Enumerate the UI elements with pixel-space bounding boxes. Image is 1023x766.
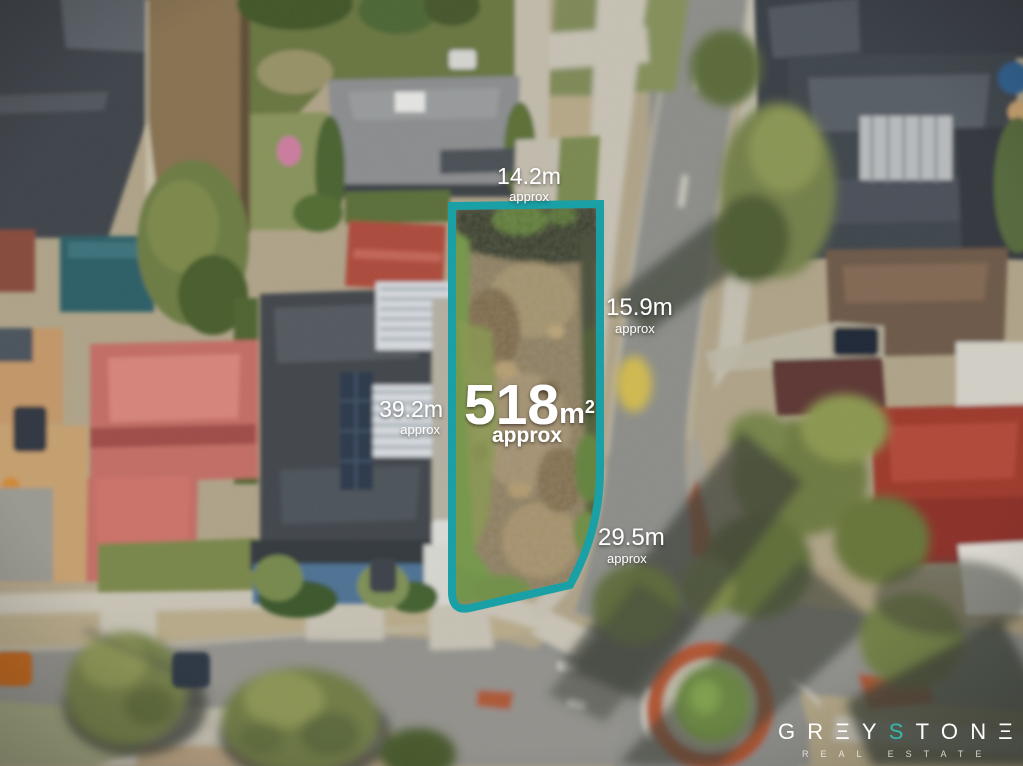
svg-text:approx: approx — [492, 424, 562, 447]
svg-text:approx: approx — [607, 551, 647, 566]
svg-text:15.9m: 15.9m — [606, 294, 673, 321]
svg-text:29.5m: 29.5m — [598, 524, 665, 551]
svg-text:14.2m: 14.2m — [497, 163, 561, 189]
svg-text:REAL ESTATE: REAL ESTATE — [802, 749, 993, 759]
svg-text:approx: approx — [400, 422, 440, 437]
svg-text:GRΞYSTONΞ: GRΞYSTONΞ — [778, 719, 1023, 744]
svg-text:approx: approx — [509, 189, 549, 204]
svg-text:approx: approx — [615, 321, 655, 336]
svg-text:39.2m: 39.2m — [379, 396, 443, 422]
